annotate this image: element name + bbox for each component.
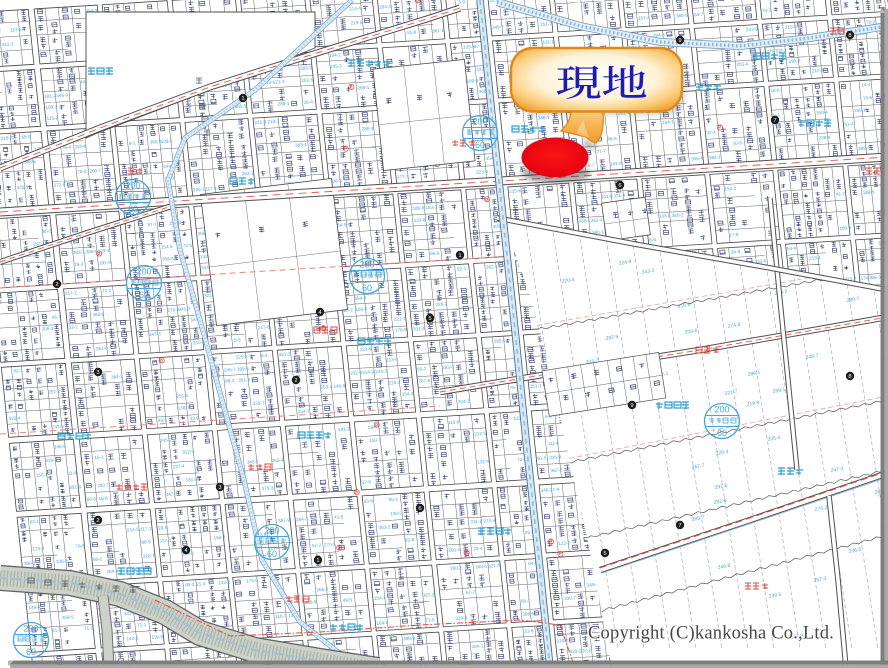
svg-text:141-8: 141-8 [610,161,623,167]
svg-text:251-3: 251-3 [176,393,189,399]
svg-text:252-8: 252-8 [48,389,61,395]
svg-text:49-5: 49-5 [343,597,353,603]
svg-text:226-2: 226-2 [435,301,448,307]
svg-text:388-6: 388-6 [92,312,105,318]
svg-text:362-1: 362-1 [486,264,499,270]
svg-text:8: 8 [848,374,851,380]
svg-text:17-9: 17-9 [729,232,739,238]
svg-text:33-2: 33-2 [68,324,78,330]
svg-text:78-8: 78-8 [77,169,87,175]
svg-text:351-3: 351-3 [238,377,251,383]
svg-text:1: 1 [241,96,244,102]
svg-text:355-4: 355-4 [272,457,285,463]
svg-text:358-4: 358-4 [816,110,829,116]
svg-text:399-6: 399-6 [237,366,250,372]
svg-text:260-2: 260-2 [450,565,463,571]
svg-text:312-3: 312-3 [1,41,14,47]
svg-text:354-8: 354-8 [354,295,367,301]
svg-text:139-1: 139-1 [161,138,174,144]
svg-text:130-5: 130-5 [390,511,403,517]
svg-text:347-3: 347-3 [165,491,178,497]
svg-text:225-3: 225-3 [236,354,249,360]
svg-text:11-5: 11-5 [68,470,78,476]
svg-text:91-5: 91-5 [537,455,547,461]
svg-text:321-4: 321-4 [488,563,501,569]
svg-text:376-7: 376-7 [556,638,569,644]
svg-text:274-4: 274-4 [483,518,496,524]
svg-text:186-8: 186-8 [412,205,425,211]
svg-text:218-3: 218-3 [388,380,401,386]
svg-text:304-2: 304-2 [458,399,471,405]
svg-text:6: 6 [418,506,421,512]
svg-text:41-7: 41-7 [835,191,845,197]
svg-text:221-7: 221-7 [394,316,407,322]
svg-text:314-9: 314-9 [362,369,375,375]
svg-text:191-9: 191-9 [99,260,112,266]
svg-text:189-9: 189-9 [466,78,479,84]
svg-text:100-7: 100-7 [564,595,577,601]
svg-text:43-7: 43-7 [51,314,61,320]
svg-text:399-7: 399-7 [858,145,871,151]
svg-text:5: 5 [428,316,431,322]
svg-text:63-1: 63-1 [29,519,39,525]
svg-text:191-2: 191-2 [338,426,351,432]
svg-text:7-4: 7-4 [552,487,560,492]
svg-text:122-8: 122-8 [558,540,571,546]
svg-text:119-9: 119-9 [151,634,163,640]
svg-text:61-4: 61-4 [844,121,854,127]
svg-text:329-7: 329-7 [252,400,265,406]
svg-text:346-9: 346-9 [56,92,69,98]
svg-text:329-3: 329-3 [455,615,468,621]
svg-text:251-7: 251-7 [540,21,553,27]
svg-text:318-7: 318-7 [143,553,156,559]
svg-text:123-3: 123-3 [32,546,45,552]
svg-text:57-2: 57-2 [312,543,322,549]
svg-text:251-1: 251-1 [529,383,542,389]
svg-text:117-1: 117-1 [140,526,152,532]
svg-text:213-8: 213-8 [386,357,399,363]
svg-text:388-5: 388-5 [676,13,689,19]
svg-text:267-8: 267-8 [418,378,431,384]
svg-text:71-1: 71-1 [137,622,147,628]
svg-text:31-6: 31-6 [524,628,534,634]
svg-text:167-2: 167-2 [423,592,436,598]
svg-text:243-9: 243-9 [52,424,65,430]
svg-text:88-6: 88-6 [86,496,96,502]
svg-text:337-3: 337-3 [159,538,172,544]
svg-text:326-9: 326-9 [549,454,562,460]
svg-text:176-9: 176-9 [395,327,408,333]
svg-text:117-3: 117-3 [205,186,217,192]
svg-text:262-4: 262-4 [591,217,604,223]
svg-text:113-6: 113-6 [10,27,22,33]
svg-text:10-9: 10-9 [732,140,742,146]
svg-text:393-3: 393-3 [73,249,86,255]
svg-text:3-9: 3-9 [458,0,466,5]
svg-text:311-1: 311-1 [470,519,482,525]
svg-text:92-8: 92-8 [405,537,415,543]
svg-text:363-2: 363-2 [378,524,391,530]
svg-text:200: 200 [472,117,487,127]
svg-text:95-9: 95-9 [731,249,741,255]
svg-text:33-9: 33-9 [190,415,200,421]
svg-text:60: 60 [128,204,138,214]
svg-text:270-5: 270-5 [324,542,337,548]
svg-text:88-9: 88-9 [141,539,151,545]
svg-text:111-8: 111-8 [548,440,560,446]
svg-text:393-3: 393-3 [300,65,313,71]
svg-text:110-8: 110-8 [448,419,460,425]
svg-text:245-7: 245-7 [224,367,237,373]
svg-text:60: 60 [717,428,727,438]
svg-text:289-1: 289-1 [277,101,290,107]
svg-text:150-1: 150-1 [36,472,49,478]
svg-text:8: 8 [848,33,851,39]
svg-text:387-9: 387-9 [278,517,291,523]
svg-text:301-4: 301-4 [413,326,426,332]
svg-text:288-3: 288-3 [362,126,375,132]
svg-text:245-2: 245-2 [160,437,173,443]
svg-text:2: 2 [294,378,297,384]
svg-text:71-2: 71-2 [84,625,94,631]
svg-text:354-2: 354-2 [401,391,414,397]
svg-text:168-5: 168-5 [475,564,488,570]
svg-text:320-2: 320-2 [569,648,582,654]
svg-text:60: 60 [362,283,372,293]
svg-text:2: 2 [55,282,58,288]
svg-text:16-8: 16-8 [98,496,108,502]
svg-text:218-3: 218-3 [267,119,280,125]
svg-text:156-9: 156-9 [839,225,852,231]
svg-text:333-8: 333-8 [659,213,672,219]
svg-text:80-2: 80-2 [185,582,195,588]
svg-text:212-5: 212-5 [474,431,487,437]
svg-text:244-3: 244-3 [375,369,388,375]
svg-text:51-8: 51-8 [407,30,417,36]
svg-text:266-3: 266-3 [316,587,329,593]
svg-text:86-9: 86-9 [430,251,440,257]
svg-text:206-1: 206-1 [193,187,206,193]
svg-text:381-2: 381-2 [279,351,292,357]
svg-text:49-3: 49-3 [158,417,168,423]
svg-text:154-6: 154-6 [161,244,174,250]
svg-text:318-2: 318-2 [0,135,13,141]
svg-text:90-5: 90-5 [42,228,52,234]
svg-text:62-1: 62-1 [14,368,24,374]
svg-text:13-6: 13-6 [863,95,873,101]
svg-text:146-9: 146-9 [333,383,346,389]
svg-text:22-2: 22-2 [581,648,591,654]
svg-text:50-4: 50-4 [787,246,797,252]
svg-text:245-3: 245-3 [330,63,343,69]
svg-text:384-1: 384-1 [471,643,484,649]
svg-text:386-1: 386-1 [579,218,592,224]
svg-text:Copyright (C)kankosha Co.,Ltd.: Copyright (C)kankosha Co.,Ltd. [588,624,834,644]
svg-text:132-4: 132-4 [477,459,490,465]
svg-text:210-3: 210-3 [785,24,798,30]
svg-text:5: 5 [603,551,606,557]
svg-text:396-5: 396-5 [522,611,535,617]
svg-text:320-6: 320-6 [75,144,88,150]
svg-text:208-3: 208-3 [41,326,54,332]
svg-text:77-7: 77-7 [596,149,606,155]
svg-text:234-7: 234-7 [298,409,311,415]
svg-text:295-1: 295-1 [494,338,507,344]
svg-text:70-2: 70-2 [102,288,112,294]
svg-text:60: 60 [26,647,36,657]
svg-text:154-2: 154-2 [724,186,737,192]
svg-text:221-9: 221-9 [254,119,267,125]
svg-text:7: 7 [773,118,776,124]
svg-text:184-2: 184-2 [329,52,342,58]
svg-text:200: 200 [136,267,151,277]
svg-text:160-6: 160-6 [355,306,368,312]
svg-text:32-8: 32-8 [361,479,371,485]
svg-text:92-1: 92-1 [457,266,467,272]
svg-text:156-4: 156-4 [213,535,226,541]
svg-text:203-4: 203-4 [320,384,333,390]
svg-text:335-9: 335-9 [16,184,29,190]
svg-text:133-8: 133-8 [413,217,426,223]
svg-text:331-4: 331-4 [613,193,626,199]
svg-text:359-5: 359-5 [62,614,75,620]
svg-text:200: 200 [264,526,279,536]
svg-text:50-2: 50-2 [417,366,427,372]
svg-text:200: 200 [125,181,140,191]
svg-text:9: 9 [678,38,681,44]
svg-text:183-3: 183-3 [425,204,438,210]
svg-text:46-8: 46-8 [607,136,617,142]
svg-text:238-4: 238-4 [818,135,831,141]
svg-text:138-7: 138-7 [177,405,190,411]
svg-text:333-1: 333-1 [542,39,555,45]
svg-text:213-1: 213-1 [809,255,822,261]
svg-text:212-4: 212-4 [811,68,824,74]
svg-text:223-9: 223-9 [476,169,489,175]
svg-text:200: 200 [359,260,374,270]
svg-text:69-5: 69-5 [21,134,31,140]
svg-text:217-2: 217-2 [65,290,78,296]
svg-text:347-3: 347-3 [149,331,162,337]
svg-text:284-4: 284-4 [379,4,392,10]
svg-text:214-5: 214-5 [127,527,140,533]
svg-text:32-4: 32-4 [706,130,716,136]
svg-text:148-4: 148-4 [28,604,41,610]
svg-text:86-2: 86-2 [225,378,235,384]
svg-text:348-3: 348-3 [540,487,553,493]
svg-text:111-6: 111-6 [601,194,613,200]
svg-text:390-9: 390-9 [403,636,416,642]
svg-text:18-6: 18-6 [770,88,780,94]
svg-text:232-9: 232-9 [350,370,363,376]
svg-text:290-8: 290-8 [788,58,801,64]
svg-text:81-2: 81-2 [52,627,62,633]
svg-text:263-1: 263-1 [241,170,254,176]
svg-text:170-6: 170-6 [246,578,259,584]
svg-text:214-4: 214-4 [349,6,362,12]
svg-text:3: 3 [218,485,221,491]
svg-text:8-6: 8-6 [649,237,657,242]
svg-text:15-2: 15-2 [94,455,104,461]
svg-text:71-6: 71-6 [425,617,435,623]
svg-text:272-9: 272-9 [53,182,66,188]
svg-text:269-1: 269-1 [357,85,370,91]
svg-text:79-3: 79-3 [74,262,84,268]
svg-text:181-2: 181-2 [44,93,57,99]
svg-text:346-1: 346-1 [538,115,551,121]
svg-text:6: 6 [618,183,621,189]
svg-text:133-2: 133-2 [218,580,231,586]
svg-text:199-5: 199-5 [862,189,875,195]
svg-text:200: 200 [714,405,729,415]
svg-text:41-8: 41-8 [334,514,344,520]
svg-text:95-2: 95-2 [388,497,398,503]
svg-text:255-4: 255-4 [736,61,749,67]
svg-text:219-5: 219-5 [350,20,363,26]
svg-text:200: 200 [23,624,38,634]
svg-text:364-2: 364-2 [111,374,124,380]
svg-text:247-6: 247-6 [258,324,271,330]
svg-text:361-1: 361-1 [432,28,445,34]
svg-text:9: 9 [630,403,633,409]
svg-text:21-3: 21-3 [275,79,285,85]
svg-text:357-8: 357-8 [96,346,109,352]
svg-text:110-7: 110-7 [275,613,287,619]
svg-text:243-9: 243-9 [746,27,759,33]
svg-text:6-3: 6-3 [261,353,269,358]
svg-text:28-4: 28-4 [473,546,483,552]
svg-text:215-6: 215-6 [509,188,522,194]
svg-text:60: 60 [475,140,485,150]
svg-text:322-4: 322-4 [8,415,21,421]
svg-text:79-2: 79-2 [866,19,876,25]
svg-text:306-4: 306-4 [691,156,704,162]
svg-text:293-8: 293-8 [442,364,455,370]
svg-text:115-2: 115-2 [46,115,58,121]
svg-text:349-7: 349-7 [492,24,505,30]
svg-text:7: 7 [678,523,681,529]
svg-text:60: 60 [267,549,277,559]
svg-text:1: 1 [316,558,319,564]
svg-text:140-3: 140-3 [126,636,139,642]
svg-text:1: 1 [458,253,461,259]
svg-text:66-2: 66-2 [93,556,103,562]
svg-text:9-1: 9-1 [129,141,137,146]
svg-text:312-5: 312-5 [182,449,195,455]
svg-text:338-5: 338-5 [185,477,198,483]
svg-text:150-1: 150-1 [369,437,382,443]
svg-text:67-7: 67-7 [466,590,476,596]
svg-text:223-6: 223-6 [360,346,373,352]
svg-text:164-1: 164-1 [662,119,675,125]
svg-text:345-3: 345-3 [178,306,191,312]
svg-text:109-3: 109-3 [45,104,58,110]
svg-text:391-3: 391-3 [69,484,82,490]
svg-text:21-4: 21-4 [196,581,206,587]
svg-text:383-4: 383-4 [295,142,308,148]
svg-text:36-3: 36-3 [871,275,881,281]
svg-text:87-7: 87-7 [147,222,157,228]
svg-text:264-3: 264-3 [106,568,119,574]
svg-text:392-1: 392-1 [709,155,722,161]
svg-text:268-1: 268-1 [854,107,867,113]
svg-text:5-5: 5-5 [234,337,242,342]
svg-text:339-4: 339-4 [45,457,58,463]
svg-text:72-5: 72-5 [183,243,193,249]
svg-text:60: 60 [139,290,149,300]
svg-text:393-7: 393-7 [97,482,110,488]
svg-text:3: 3 [96,370,99,376]
svg-text:2: 2 [96,518,99,524]
svg-text:375-3: 375-3 [261,485,274,491]
svg-text:93-6: 93-6 [363,498,373,504]
svg-text:345-2: 345-2 [247,459,260,465]
svg-text:356-4: 356-4 [162,256,175,262]
svg-text:85-1: 85-1 [521,598,531,604]
svg-text:177-3: 177-3 [397,174,410,180]
svg-text:200-4: 200-4 [448,547,461,553]
svg-text:148-8: 148-8 [54,444,67,450]
svg-text:338-8: 338-8 [56,558,69,564]
svg-text:154-7: 154-7 [374,595,387,601]
svg-text:29-5: 29-5 [158,525,168,531]
svg-text:367-2: 367-2 [550,467,563,473]
svg-text:390-1: 390-1 [24,560,37,566]
svg-text:284-3: 284-3 [296,516,309,522]
svg-text:64-7: 64-7 [694,12,704,18]
svg-text:260-7: 260-7 [89,168,102,174]
svg-text:227-4: 227-4 [173,464,186,470]
svg-text:184-8: 184-8 [376,620,389,626]
svg-text:360-2: 360-2 [672,212,685,218]
svg-text:14-4: 14-4 [861,82,871,88]
svg-text:36-4: 36-4 [303,99,313,105]
svg-text:78-8: 78-8 [75,543,85,549]
svg-text:74-3: 74-3 [762,8,772,14]
svg-text:262-5: 262-5 [301,77,314,83]
svg-text:157-4: 157-4 [638,15,651,21]
